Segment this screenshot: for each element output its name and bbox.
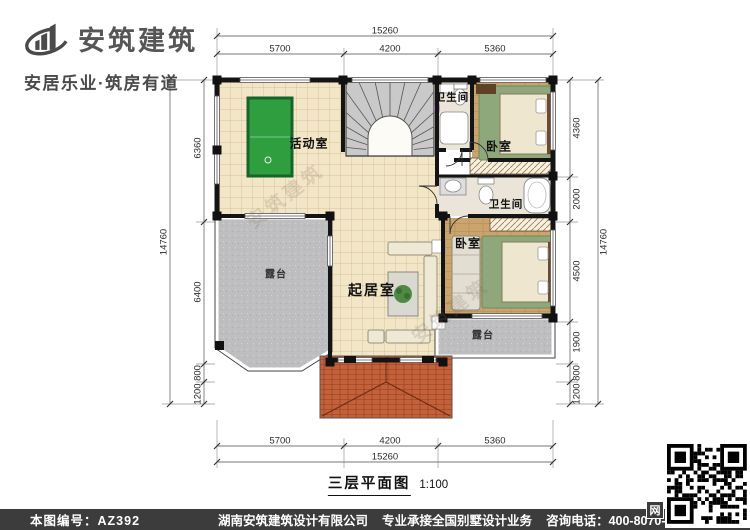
dim-bottom-seg: 5700 <box>269 436 290 447</box>
room-label-terrace-left: 露台 <box>265 266 287 281</box>
brand-tagline: 安居乐业·筑房有道 <box>24 69 242 94</box>
dim-left-total: 14760 <box>159 229 170 255</box>
dim-left-seg: 6400 <box>193 281 204 302</box>
room-label-terrace-right: 露台 <box>472 327 494 342</box>
dim-right-seg: 1200 <box>572 383 583 404</box>
brand-header: 安筑建筑 安居乐业·筑房有道 <box>22 16 242 94</box>
dim-left-seg: 800 <box>193 365 204 381</box>
footer-plan-number: 本图编号：AZ392 <box>30 510 140 529</box>
room-label-bath-top: 卫生间 <box>435 90 470 105</box>
brand-logo-icon <box>22 16 74 60</box>
dim-bottom-seg: 4200 <box>379 436 400 447</box>
footer-service: 专业承接全国别墅设计业务 <box>382 510 532 529</box>
dim-top-seg: 5700 <box>269 44 290 55</box>
room-label-bedroom-mid: 卧室 <box>455 235 481 252</box>
plan-caption: 三层平面图 1:100 <box>328 472 448 496</box>
dim-right-seg: 1900 <box>572 331 583 352</box>
dim-right-seg: 2000 <box>572 188 583 209</box>
room-label-activity: 活动室 <box>289 135 328 152</box>
footer-company: 湖南安筑建筑设计有限公司 <box>218 510 368 529</box>
qr-code <box>665 440 750 528</box>
plan-caption-scale: 1:100 <box>419 479 448 491</box>
room-label-bath-mid: 卫生间 <box>489 197 524 212</box>
dim-top-seg: 5360 <box>484 44 505 55</box>
dim-bottom-total: 15260 <box>372 452 398 463</box>
plan-caption-title: 三层平面图 <box>328 472 411 496</box>
dim-left-seg: 6360 <box>193 137 204 158</box>
room-label-living: 起居室 <box>348 280 396 300</box>
dim-right-seg: 800 <box>572 365 583 381</box>
dim-top-seg: 4200 <box>379 44 400 55</box>
brand-name: 安筑建筑 <box>78 19 198 58</box>
web-badge: 网 <box>646 501 664 519</box>
dim-right-seg: 4500 <box>572 260 583 281</box>
dim-right-total: 14760 <box>599 229 610 255</box>
room-label-bedroom-top: 卧室 <box>486 138 512 155</box>
dim-left-seg: 1200 <box>193 383 204 404</box>
page: 安筑建筑 安筑建筑 活动室 卫生间 卧室 卫生间 卧室 起居室 露台 露台 15… <box>0 0 750 530</box>
dim-right-seg: 4360 <box>572 117 583 138</box>
dim-bottom-seg: 5360 <box>484 436 505 447</box>
footer-bar: 本图编号：AZ392 湖南安筑建筑设计有限公司 专业承接全国别墅设计业务 咨询电… <box>0 509 750 530</box>
dim-top-total: 15260 <box>372 26 398 37</box>
